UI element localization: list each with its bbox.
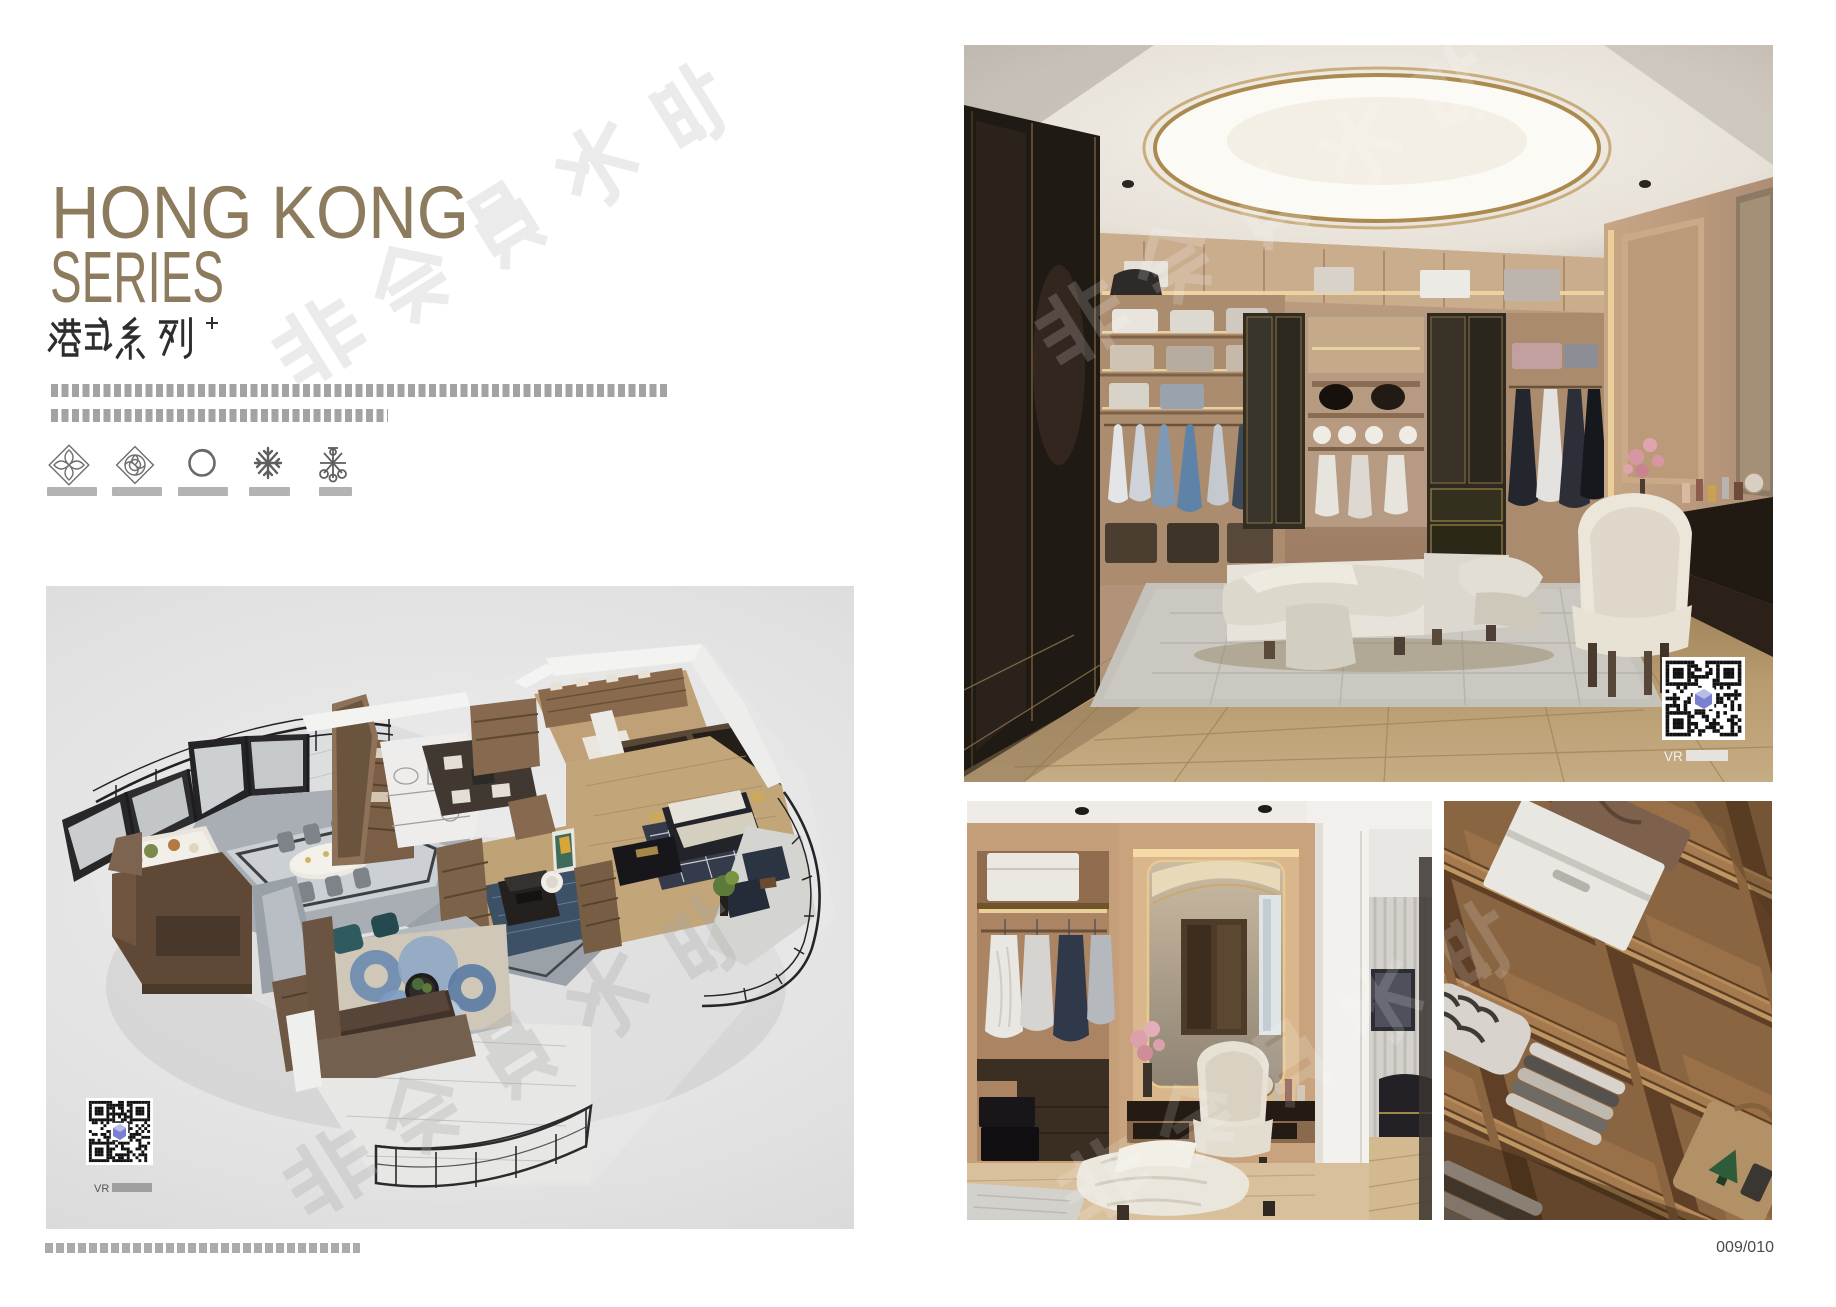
svg-text:VR: VR: [94, 1183, 109, 1195]
svg-text:SERIES: SERIES: [50, 238, 224, 318]
svg-text:VR: VR: [1664, 749, 1683, 764]
